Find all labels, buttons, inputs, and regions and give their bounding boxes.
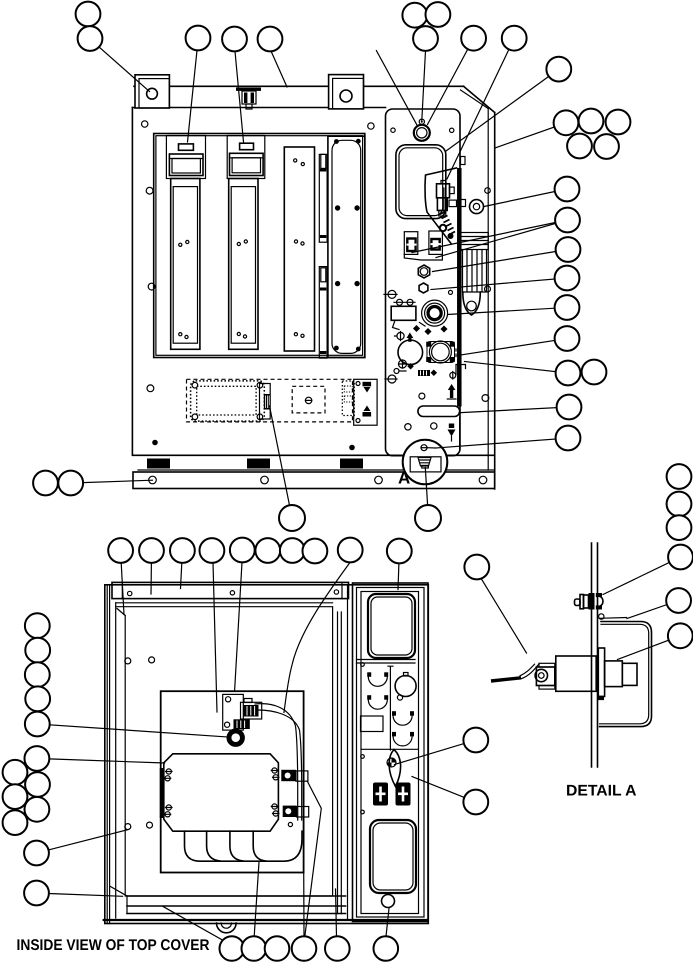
svg-text:INSIDE VIEW OF TOP COVER: INSIDE VIEW OF TOP COVER bbox=[17, 937, 210, 954]
svg-text:A: A bbox=[398, 469, 410, 488]
svg-text:DETAIL A: DETAIL A bbox=[566, 783, 637, 800]
